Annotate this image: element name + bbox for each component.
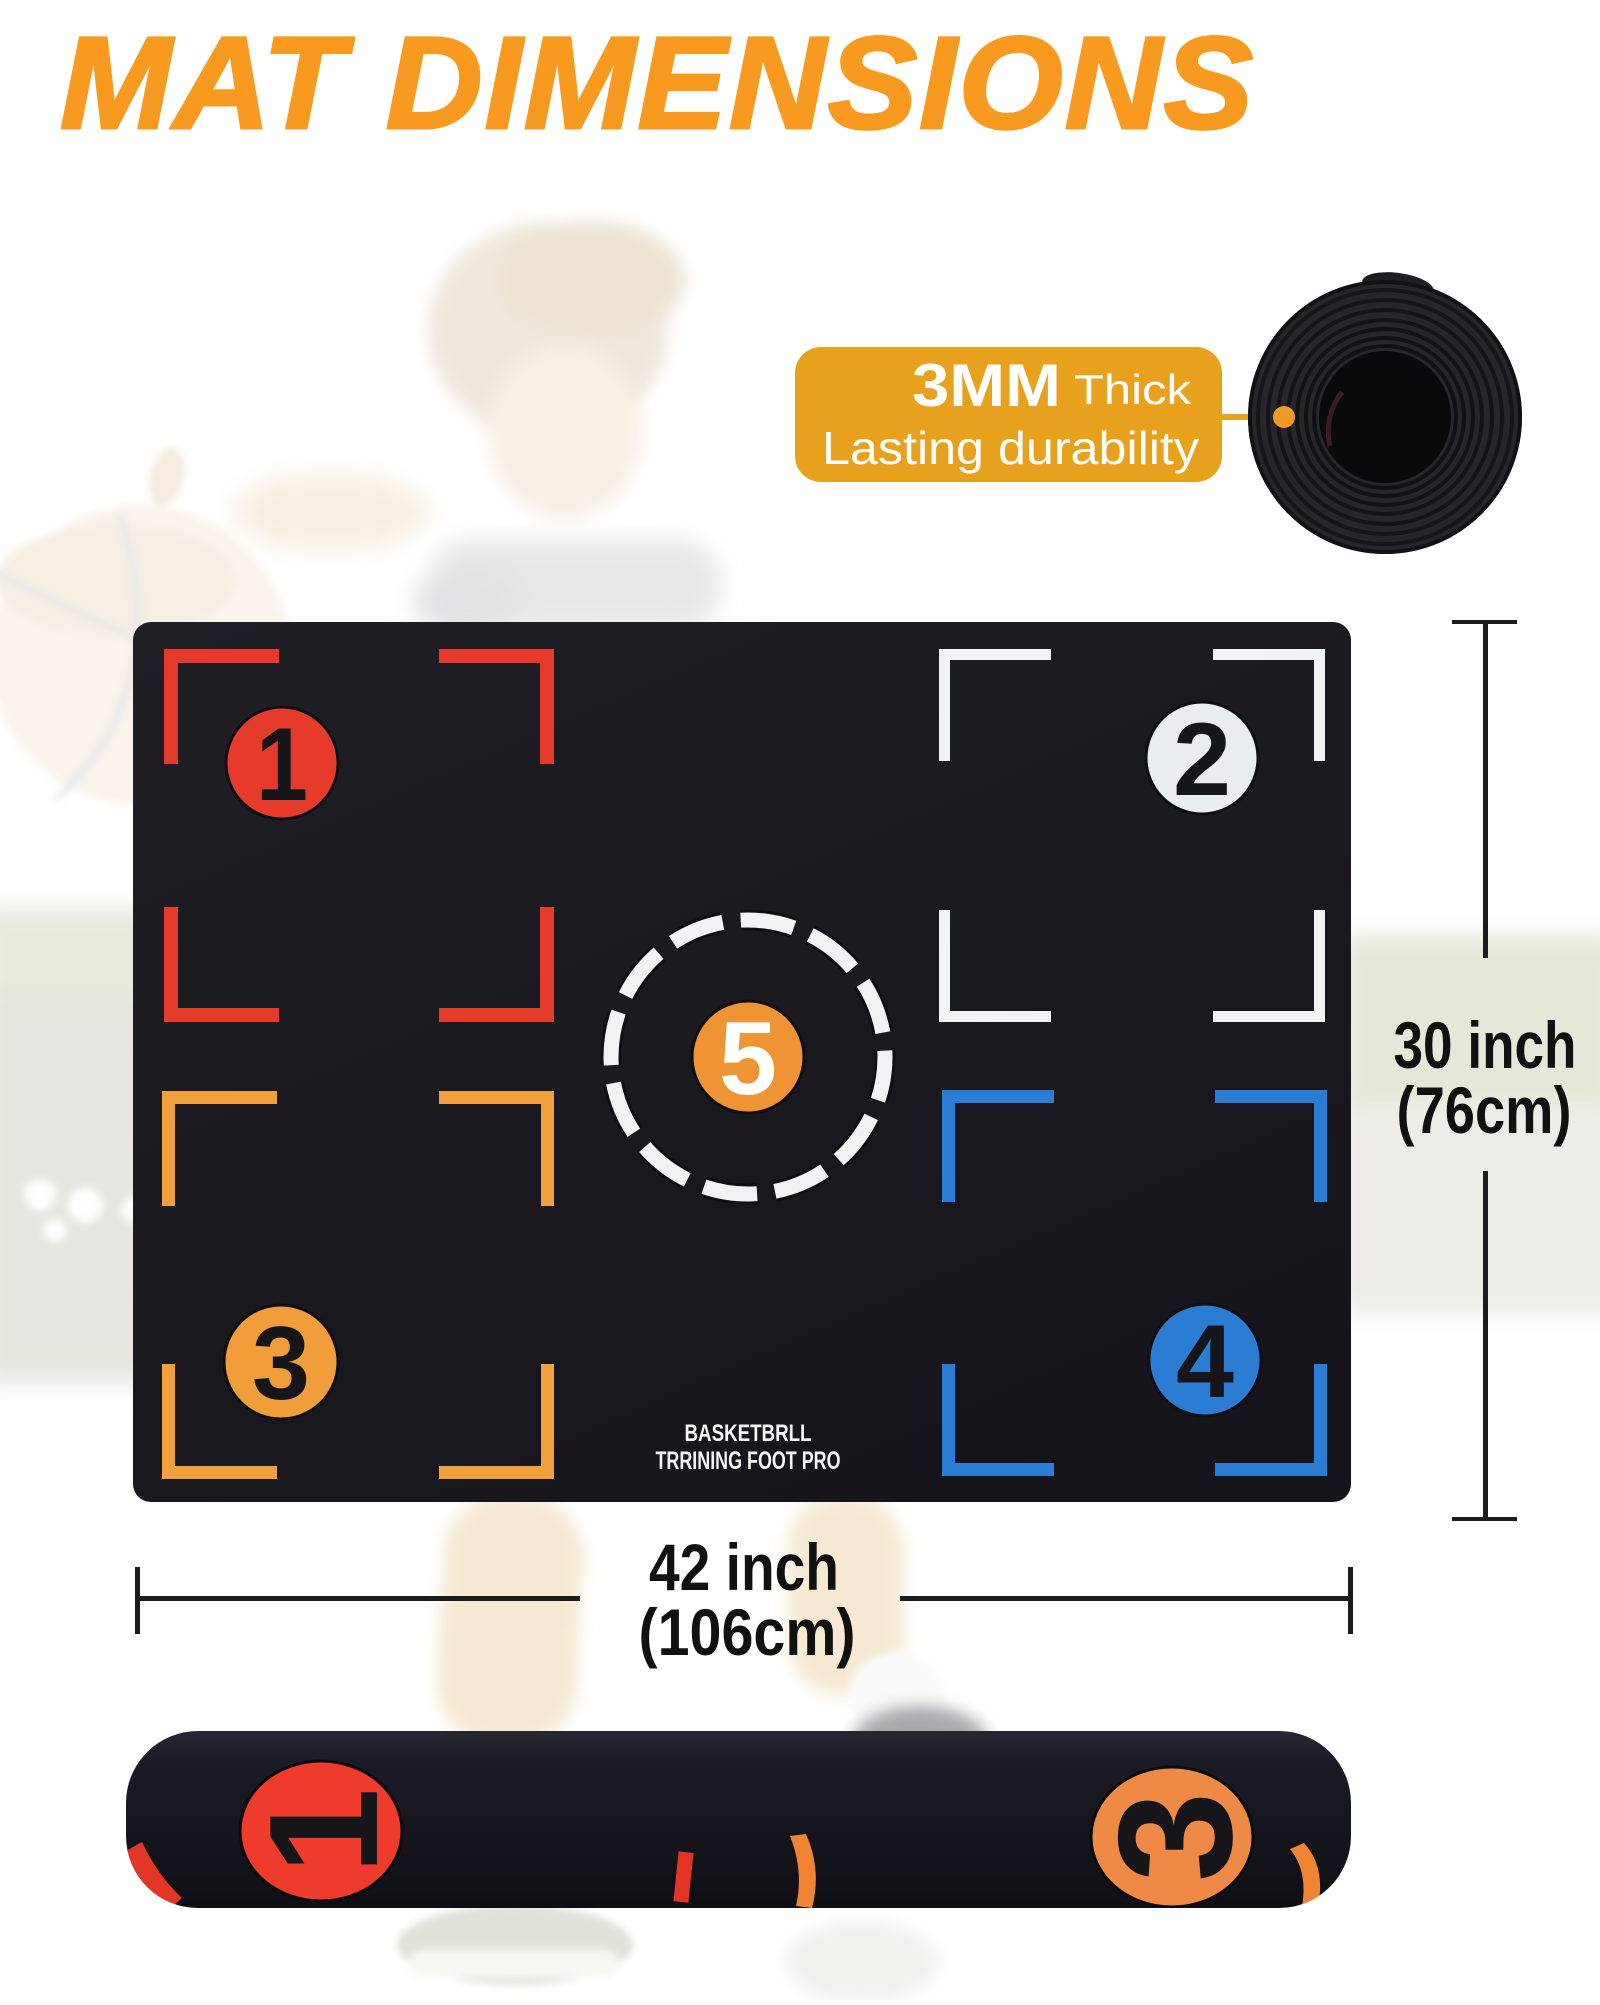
- svg-text:30 inch: 30 inch: [1394, 1008, 1577, 1082]
- svg-text:3: 3: [1085, 1792, 1266, 1882]
- svg-text:4: 4: [1176, 1304, 1234, 1420]
- svg-text:1: 1: [256, 707, 308, 823]
- svg-text:3MM: 3MM: [912, 352, 1061, 419]
- svg-text:Lasting durability: Lasting durability: [822, 422, 1199, 474]
- svg-text:(76cm): (76cm): [1397, 1073, 1572, 1147]
- svg-text:1: 1: [237, 1788, 410, 1874]
- svg-text:Thick: Thick: [1074, 366, 1192, 413]
- svg-text:5: 5: [719, 1001, 777, 1117]
- svg-text:(106cm): (106cm): [639, 1595, 856, 1669]
- svg-text:2: 2: [1173, 702, 1231, 818]
- svg-text:BASKETBRLL: BASKETBRLL: [685, 1420, 812, 1447]
- svg-text:TRRINING FOOT PRO: TRRINING FOOT PRO: [656, 1447, 841, 1475]
- svg-text:3: 3: [252, 1306, 310, 1422]
- svg-text:MAT DIMENSIONS: MAT DIMENSIONS: [60, 9, 1255, 156]
- svg-text:42 inch: 42 inch: [649, 1530, 839, 1604]
